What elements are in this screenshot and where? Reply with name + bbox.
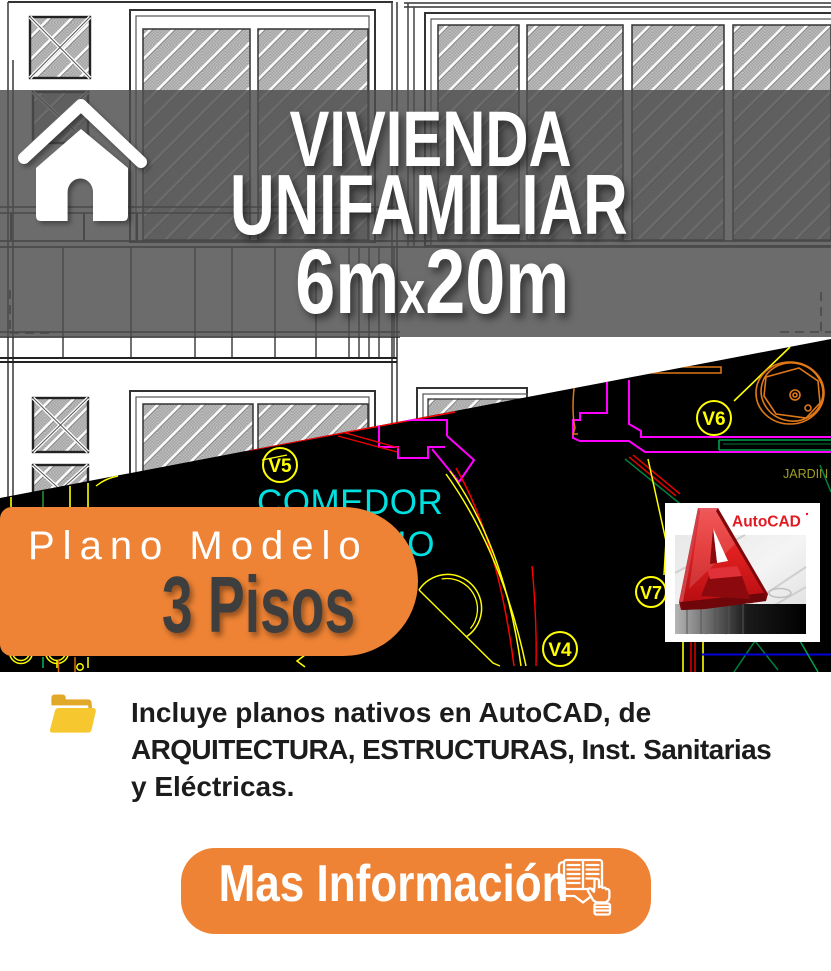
svg-text:V7: V7	[640, 583, 662, 603]
svg-text:V4: V4	[548, 640, 572, 661]
svg-text:V6: V6	[702, 409, 725, 430]
svg-text:AutoCAD: AutoCAD	[732, 514, 801, 531]
svg-text:V5: V5	[268, 456, 292, 477]
